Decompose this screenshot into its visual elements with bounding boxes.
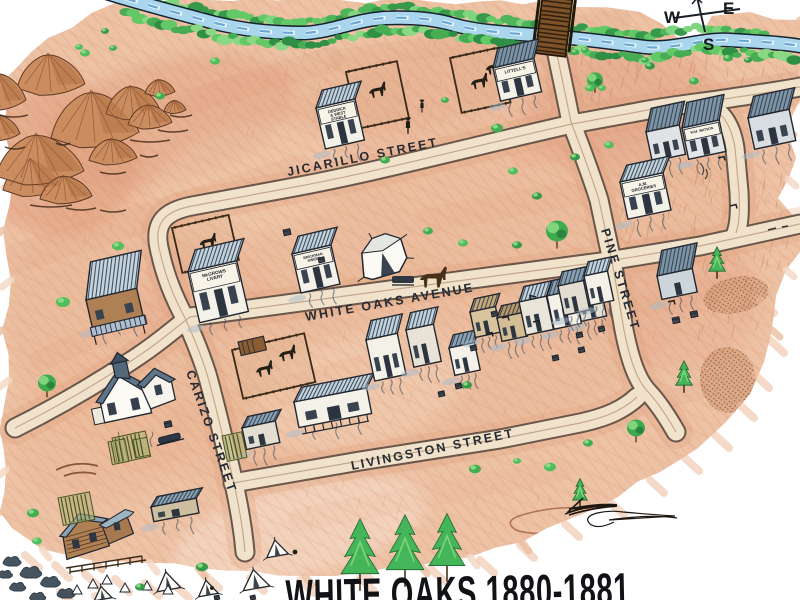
svg-text:W: W — [664, 8, 681, 27]
svg-text:S: S — [703, 35, 714, 54]
svg-text:E: E — [723, 0, 734, 18]
svg-text:WHITE OAKS 1880-1881: WHITE OAKS 1880-1881 — [285, 564, 630, 600]
